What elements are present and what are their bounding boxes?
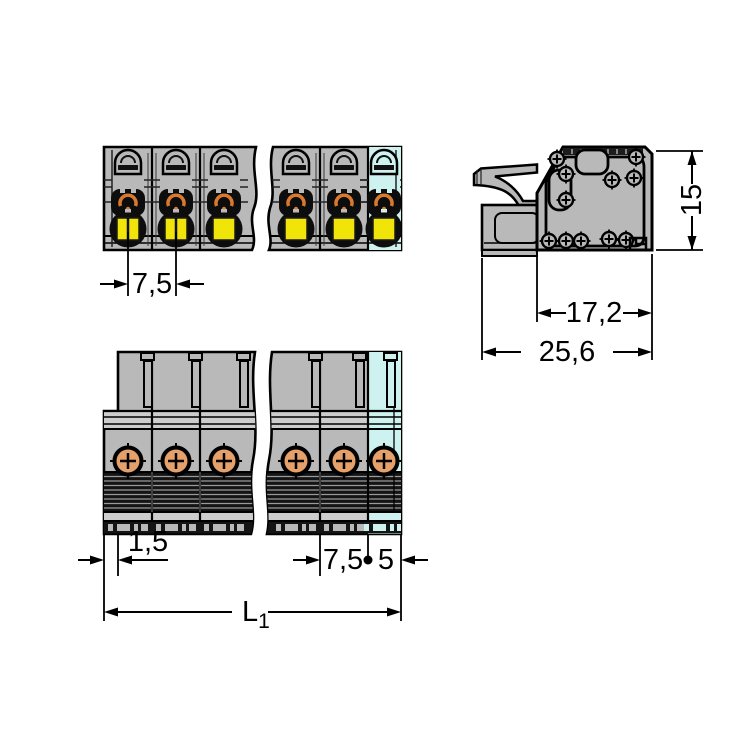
arrowhead xyxy=(104,608,118,617)
panel-notch xyxy=(576,150,608,174)
arrowhead xyxy=(688,236,697,250)
dim-label-depth-housing: 17,2 xyxy=(566,297,622,329)
technical-drawing: 7,5 xyxy=(0,0,750,750)
dimension-pitch-and-end: 7,5 5 xyxy=(293,534,428,621)
dim-label-pole-pitch-bottom: 7,5 xyxy=(323,544,363,576)
arrowhead xyxy=(176,280,190,289)
dim-label-pole-pitch-front: 7,5 xyxy=(132,268,172,300)
arrowhead xyxy=(638,348,652,357)
drawing-canvas: 7,5 xyxy=(0,0,750,750)
arrowhead xyxy=(387,608,401,617)
arrowhead xyxy=(114,280,128,289)
dim-label-total-length: L1 xyxy=(242,596,270,633)
side-view xyxy=(474,147,652,256)
top-view xyxy=(104,352,404,534)
arrowhead xyxy=(306,556,320,565)
locking-lever xyxy=(474,165,537,207)
arrowhead xyxy=(90,556,104,565)
arrowhead xyxy=(638,309,652,318)
arrowhead xyxy=(401,556,415,565)
plug-section-base xyxy=(482,250,537,256)
arrowhead xyxy=(688,151,697,165)
dimension-height: 15 xyxy=(656,151,708,250)
dim-label-height: 15 xyxy=(676,184,708,216)
dim-label-edge-offset: 1,5 xyxy=(128,526,168,558)
arrowhead xyxy=(537,309,551,318)
dimension-origin-dot xyxy=(364,556,373,565)
arrowhead xyxy=(482,348,496,357)
dim-label-depth-total: 25,6 xyxy=(539,336,595,368)
dimension-edge-offset: 1,5 xyxy=(78,526,168,621)
dimension-total-length: L1 xyxy=(104,596,401,633)
front-view xyxy=(104,147,408,250)
dim-label-end-clearance: 5 xyxy=(378,544,394,576)
